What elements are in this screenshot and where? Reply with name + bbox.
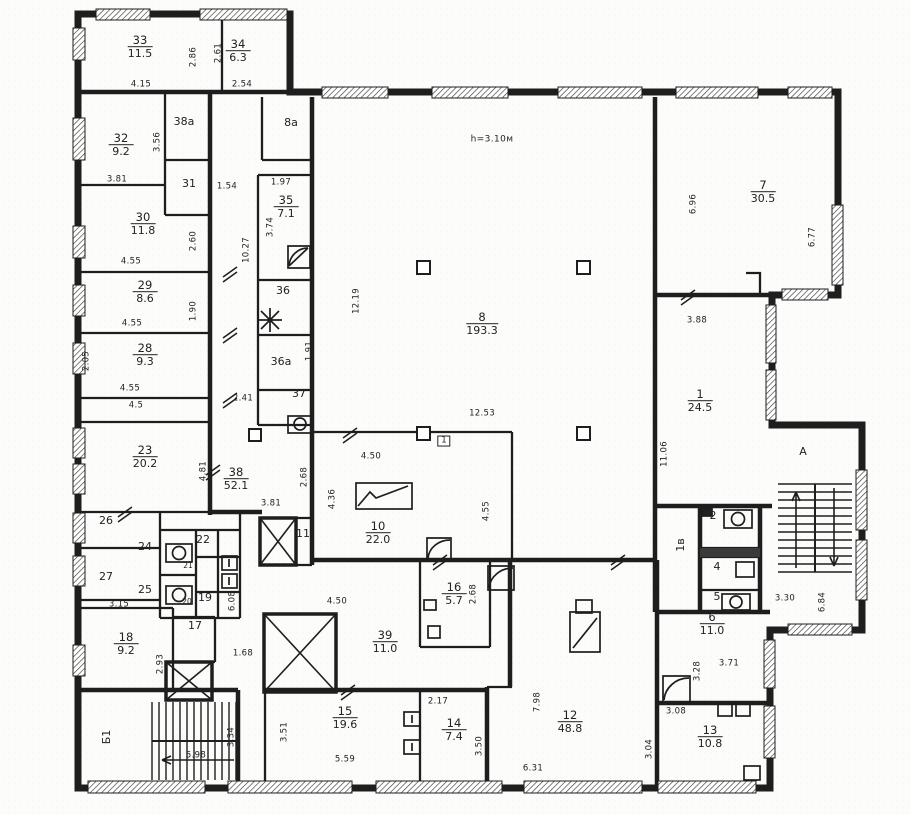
door-number-label: 1 [437, 436, 450, 447]
dimension-label: 2.86 [190, 47, 199, 67]
dimension-label: 4.55 [483, 501, 492, 521]
dimension-label: 3.51 [281, 722, 290, 742]
room-label: 3011.8 [131, 211, 156, 237]
room-area: 7.4 [442, 731, 467, 743]
dimension-label: 1.90 [190, 301, 199, 321]
dimension-label: 2.41 [233, 395, 253, 404]
room-label: 611.0 [700, 611, 725, 637]
room-number: 1 [688, 388, 713, 401]
room-label: 730.5 [751, 179, 776, 205]
room-area: 8.6 [133, 293, 158, 305]
dimension-label: 3.50 [476, 736, 485, 756]
dimension-label: 1.91 [306, 341, 315, 361]
dimension-label: 6.31 [523, 765, 543, 774]
room-number: 7 [751, 179, 776, 192]
room-number: 38 [224, 466, 249, 479]
room-label: 147.4 [442, 717, 467, 743]
dimension-label: 4.55 [122, 320, 142, 329]
dimension-label: 2.68 [301, 467, 310, 487]
dimension-label: 3.28 [694, 661, 703, 681]
room-area: 6.3 [226, 52, 251, 64]
room-area: 22.0 [366, 534, 391, 546]
dimension-label: 6.77 [809, 227, 818, 247]
room-area: 11.0 [373, 643, 398, 655]
room-number-label: 27 [99, 571, 113, 583]
room-number-label: 36 [276, 285, 290, 297]
room-number-label: 36а [271, 356, 292, 368]
dimension-label: 7.98 [534, 692, 543, 712]
room-area: 9.2 [109, 146, 134, 158]
room-number-label: 4 [714, 561, 721, 573]
room-label: 2320.2 [133, 444, 158, 470]
room-area: 7.1 [274, 208, 299, 220]
dimension-label: 2.60 [190, 231, 199, 251]
dimension-label: 6.84 [819, 592, 828, 612]
dimension-label: 4.81 [200, 461, 209, 481]
room-label: 357.1 [274, 194, 299, 220]
room-number-label: 8а [284, 117, 298, 129]
dimension-label: 3.15 [109, 601, 129, 610]
room-label: 189.2 [114, 631, 139, 657]
room-number-label: 5 [714, 591, 721, 603]
room-area: 5.7 [442, 595, 467, 607]
dimension-label: 4.55 [120, 385, 140, 394]
room-number-label: 25 [138, 584, 152, 596]
dimension-label: 3.56 [154, 132, 163, 152]
room-area: 52.1 [224, 480, 249, 492]
dimension-label: 2.61 [215, 43, 224, 63]
dimension-label: 11.06 [661, 441, 670, 467]
room-number-label: 19 [198, 592, 212, 604]
room-number: 35 [274, 194, 299, 207]
dimension-label: 1.54 [217, 183, 237, 192]
dimension-label: 2.54 [232, 81, 252, 90]
labels-layer: 3311.5346.3329.23011.8298.6289.32320.235… [0, 0, 910, 814]
dimension-label: 6.96 [690, 194, 699, 214]
room-label: 3852.1 [224, 466, 249, 492]
room-label: 1310.8 [698, 724, 723, 750]
room-number: 33 [128, 34, 153, 47]
dimension-label: 4.50 [327, 598, 347, 607]
dimension-label: 3.88 [687, 317, 707, 326]
stair-label: Б1 [101, 730, 113, 745]
floor-plan: 3311.5346.3329.23011.8298.6289.32320.235… [0, 0, 910, 814]
dimension-label: 2.68 [470, 584, 479, 604]
room-number-label: 37 [292, 388, 306, 400]
room-label: 1248.8 [558, 709, 583, 735]
room-area: 10.8 [698, 738, 723, 750]
room-label: 289.3 [133, 342, 158, 368]
dimension-label: 3.74 [267, 217, 276, 237]
room-area: 30.5 [751, 193, 776, 205]
room-number: 6 [700, 611, 725, 624]
room-label: 3911.0 [373, 629, 398, 655]
dimension-label: 12.53 [469, 410, 495, 419]
room-number: 29 [133, 279, 158, 292]
room-number: 16 [442, 581, 467, 594]
dimension-label: 3.71 [719, 660, 739, 669]
room-number: 8 [466, 311, 498, 324]
room-area: 11.8 [131, 225, 156, 237]
ceiling-height-note: h=3.10м [471, 135, 514, 144]
room-number: 28 [133, 342, 158, 355]
room-number-label: 26 [99, 515, 113, 527]
room-label: 1022.0 [366, 520, 391, 546]
dimension-label: 2.05 [83, 351, 92, 371]
room-area: 19.6 [333, 719, 358, 731]
room-number: 30 [131, 211, 156, 224]
room-number: 13 [698, 724, 723, 737]
room-number: 23 [133, 444, 158, 457]
room-label: 165.7 [442, 581, 467, 607]
stair-label: А [799, 446, 807, 458]
room-number-label: 24 [138, 541, 152, 553]
dimension-label: 2.17 [428, 698, 448, 707]
room-number: 34 [226, 38, 251, 51]
room-number: 18 [114, 631, 139, 644]
room-number: 10 [366, 520, 391, 533]
room-area: 9.2 [114, 645, 139, 657]
dimension-label: 12.19 [353, 288, 362, 314]
room-label: 346.3 [226, 38, 251, 64]
room-number-label: 22 [196, 534, 210, 546]
dimension-label: 6.08 [229, 591, 238, 611]
room-area: 9.3 [133, 356, 158, 368]
room-area: 11.5 [128, 48, 153, 60]
room-number: 39 [373, 629, 398, 642]
room-number-label: 11 [296, 528, 310, 540]
room-label: 1519.6 [333, 705, 358, 731]
room-area: 20.2 [133, 458, 158, 470]
room-area: 24.5 [688, 402, 713, 414]
dimension-label: 5.98 [186, 752, 206, 761]
dimension-label: 3.04 [646, 739, 655, 759]
room-label: 124.5 [688, 388, 713, 414]
room-number-label: 20 [182, 598, 192, 606]
room-number: 15 [333, 705, 358, 718]
room-number-label: 38а [174, 116, 195, 128]
dimension-label: 4.15 [131, 81, 151, 90]
dimension-label: 5.59 [335, 756, 355, 765]
dimension-label: 10.27 [243, 237, 252, 263]
room-area: 48.8 [558, 723, 583, 735]
dimension-label: 3.30 [775, 595, 795, 604]
dimension-label: 4.5 [129, 402, 143, 411]
room-area: 193.3 [466, 325, 498, 337]
dimension-label: 1.68 [233, 650, 253, 659]
room-label: 298.6 [133, 279, 158, 305]
room-number: 12 [558, 709, 583, 722]
dimension-label: 3.08 [666, 708, 686, 717]
room-number-label: 21 [183, 562, 193, 570]
dimension-label: 1.97 [271, 179, 291, 188]
dimension-label: 4.55 [121, 258, 141, 267]
dimension-label: 4.36 [329, 489, 338, 509]
room-label: 8193.3 [466, 311, 498, 337]
dimension-label: 3.34 [228, 727, 237, 747]
dimension-label: 3.81 [107, 176, 127, 185]
room-area: 11.0 [700, 625, 725, 637]
room-number: 32 [109, 132, 134, 145]
dimension-label: 3.81 [261, 500, 281, 509]
room-number-label: 2 [710, 510, 717, 522]
room-number-label: 17 [188, 620, 202, 632]
room-number: 14 [442, 717, 467, 730]
room-number-label: 31 [182, 178, 196, 190]
room-label: 3311.5 [128, 34, 153, 60]
room-number-label: 1в [675, 538, 687, 551]
room-label: 329.2 [109, 132, 134, 158]
dimension-label: 4.50 [361, 453, 381, 462]
dimension-label: 2.93 [157, 654, 166, 674]
